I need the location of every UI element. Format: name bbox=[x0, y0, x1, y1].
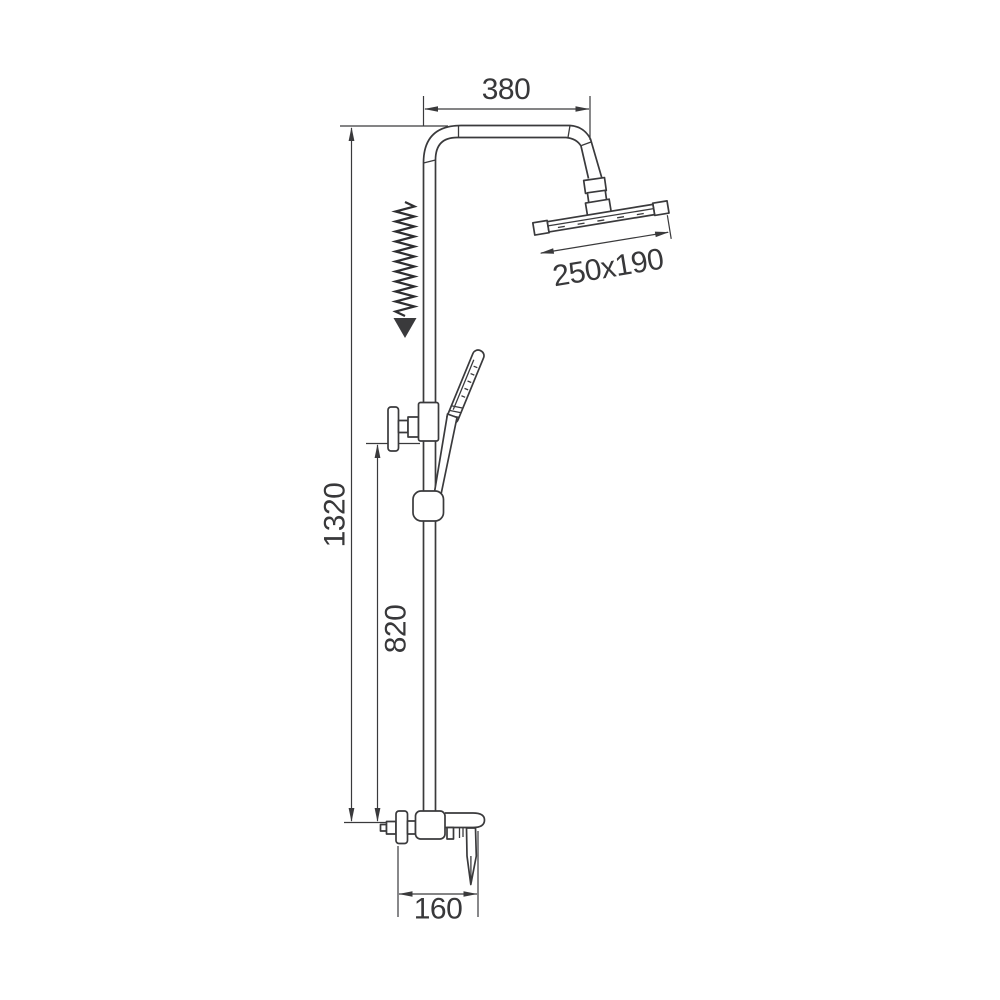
bracket-slider-clamp bbox=[419, 403, 439, 442]
extension-line bbox=[667, 215, 671, 239]
hand-shower-holder bbox=[413, 491, 444, 521]
arrowhead-up-icon bbox=[349, 127, 355, 141]
spout-underside bbox=[447, 828, 454, 840]
hand-shower bbox=[435, 348, 486, 494]
arrowhead-left-icon bbox=[424, 106, 438, 112]
spout-underside-lines bbox=[460, 828, 464, 839]
arrowhead-left-icon bbox=[539, 248, 554, 256]
dimension-total-height-label: 1320 bbox=[319, 483, 352, 548]
arrowhead-right-icon bbox=[576, 106, 590, 112]
inlet-stub bbox=[381, 825, 387, 832]
flange-connector bbox=[408, 821, 416, 834]
hose-pull-arrow bbox=[394, 202, 417, 338]
dimension-top-width-label: 380 bbox=[482, 73, 531, 106]
dimension-top-width: 380 bbox=[424, 73, 591, 140]
pipe-joint-tick bbox=[582, 142, 592, 146]
wall-flange bbox=[396, 811, 408, 844]
arrowhead-down-icon bbox=[394, 318, 417, 338]
diagram-svg: 1320 820 380 bbox=[0, 0, 1000, 1000]
rain-shower-head: 250x190 bbox=[533, 201, 679, 295]
mixer-valve bbox=[381, 811, 485, 885]
pipe-joint-tick bbox=[568, 126, 570, 138]
dimension-bracket-height: 820 bbox=[366, 444, 420, 823]
arrowhead-right-icon bbox=[464, 891, 478, 897]
arrowhead-down-icon bbox=[375, 808, 381, 822]
arrowhead-left-icon bbox=[399, 891, 413, 897]
bracket-wall-plate bbox=[388, 407, 399, 451]
dimension-total-height: 1320 bbox=[319, 126, 449, 823]
inlet-nut bbox=[387, 822, 397, 835]
dimension-mixer-width-label: 160 bbox=[414, 893, 463, 926]
mixer-body bbox=[416, 811, 446, 839]
dimension-bracket-height-label: 820 bbox=[380, 605, 413, 654]
shower-column-technical-drawing: 1320 820 380 bbox=[0, 0, 1000, 1000]
bracket-arm bbox=[408, 417, 419, 437]
mixer-spout bbox=[445, 813, 485, 828]
hand-shower-head bbox=[445, 348, 485, 424]
bracket-arm bbox=[399, 421, 409, 433]
arrowhead-up-icon bbox=[375, 444, 381, 458]
pipe-joint-tick bbox=[424, 160, 436, 163]
zigzag-line bbox=[396, 202, 415, 316]
arrowhead-down-icon bbox=[349, 808, 355, 822]
dimension-head-size-label: 250x190 bbox=[550, 243, 665, 294]
pipe-inner-edge bbox=[436, 138, 589, 812]
arrowhead-right-icon bbox=[655, 229, 670, 237]
